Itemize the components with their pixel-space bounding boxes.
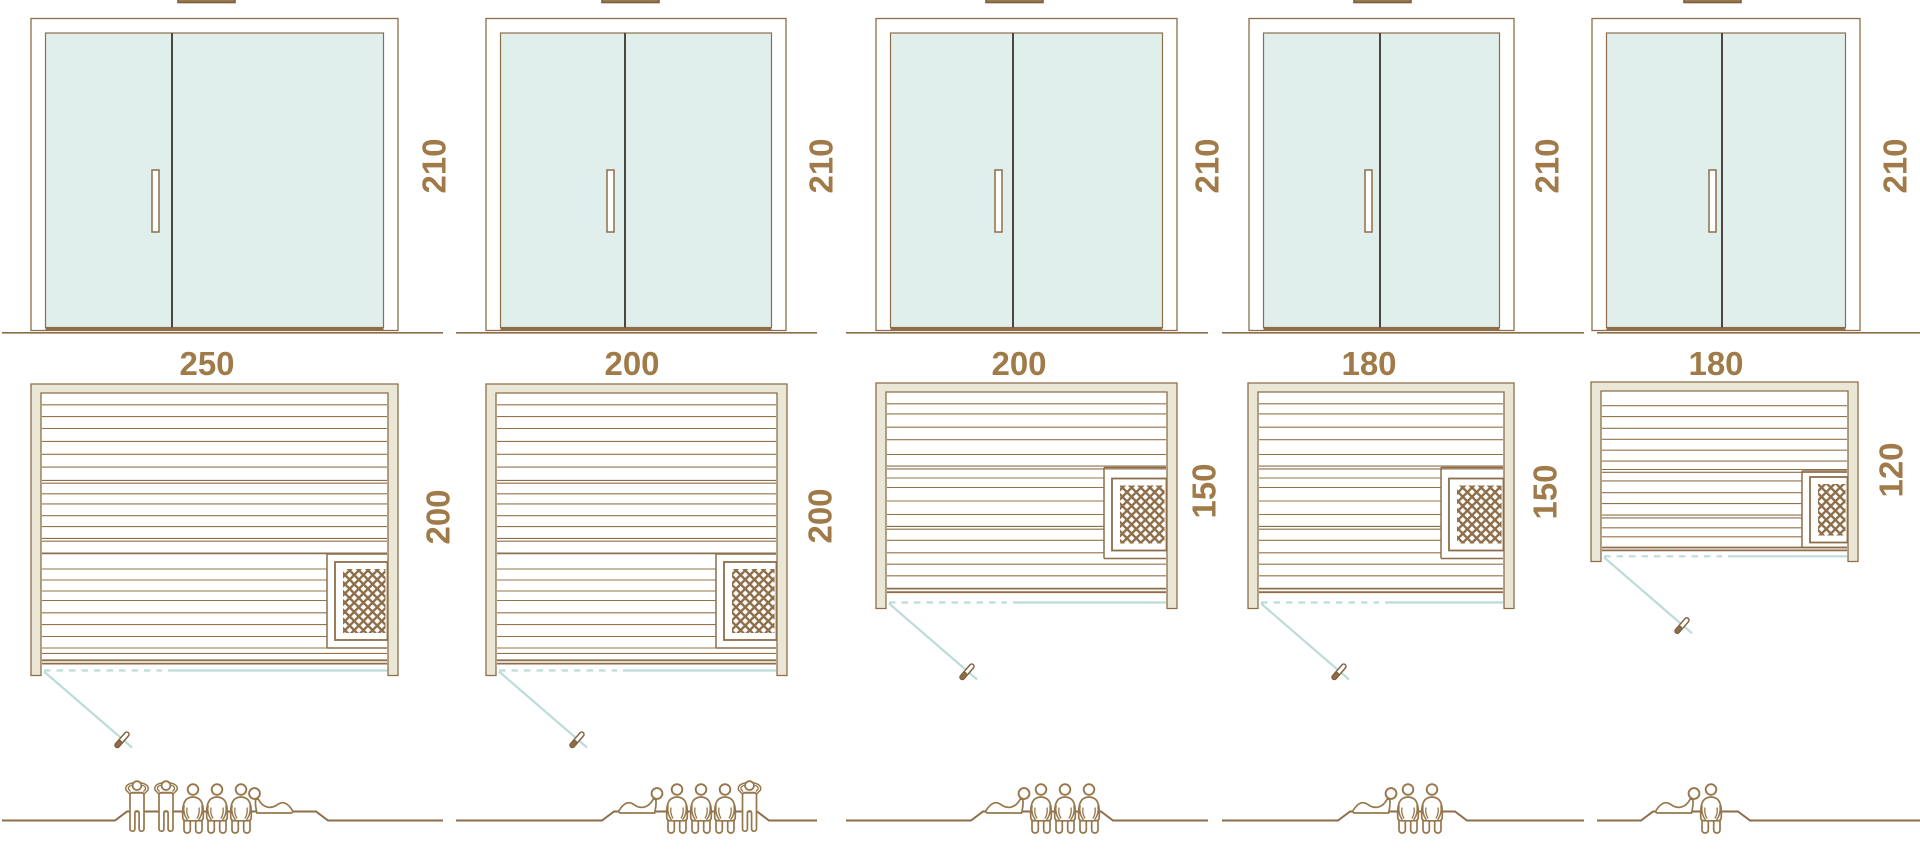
- svg-text:150: 150: [1527, 464, 1564, 519]
- svg-text:120: 120: [1873, 442, 1910, 497]
- svg-text:200: 200: [991, 345, 1046, 382]
- svg-text:250: 250: [179, 345, 234, 382]
- svg-text:210: 210: [1189, 138, 1226, 193]
- svg-text:200: 200: [604, 345, 659, 382]
- svg-text:180: 180: [1688, 345, 1743, 382]
- svg-text:210: 210: [416, 138, 453, 193]
- svg-text:180: 180: [1341, 345, 1396, 382]
- svg-text:150: 150: [1186, 463, 1223, 518]
- svg-text:200: 200: [420, 489, 457, 544]
- svg-text:210: 210: [1877, 138, 1914, 193]
- svg-text:210: 210: [803, 138, 840, 193]
- svg-text:210: 210: [1529, 138, 1566, 193]
- svg-text:200: 200: [802, 488, 839, 543]
